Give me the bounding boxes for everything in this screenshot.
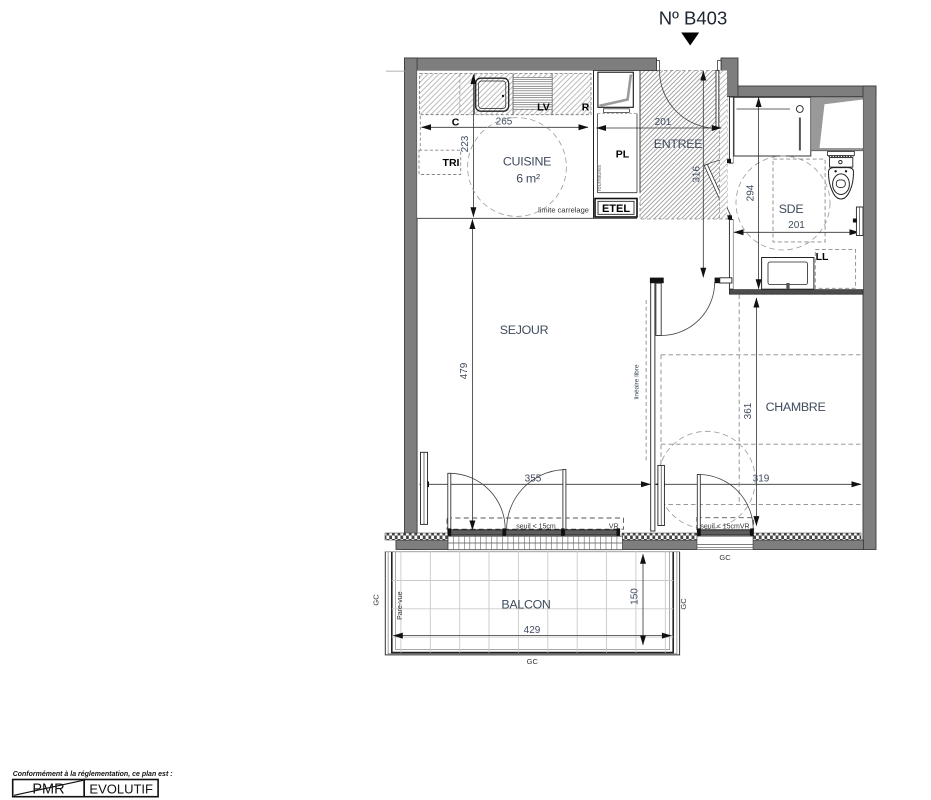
svg-text:CHAMBRE: CHAMBRE (766, 400, 826, 414)
svg-text:CUISINE: CUISINE (503, 155, 551, 169)
svg-text:SDE: SDE (779, 202, 804, 216)
svg-text:R: R (582, 101, 590, 113)
svg-text:SEJOUR: SEJOUR (500, 323, 549, 337)
svg-text:GC: GC (372, 594, 381, 606)
svg-text:223: 223 (460, 135, 471, 152)
svg-text:201: 201 (788, 220, 805, 231)
svg-text:6 m²: 6 m² (516, 171, 540, 185)
svg-text:LV: LV (537, 101, 550, 113)
svg-text:265: 265 (496, 117, 513, 128)
svg-text:linéaire libre: linéaire libre (634, 364, 641, 399)
svg-text:479: 479 (459, 362, 470, 379)
svg-text:limite carrelage: limite carrelage (538, 206, 589, 215)
svg-text:PL: PL (616, 148, 630, 160)
svg-text:GC: GC (679, 598, 688, 610)
svg-text:294: 294 (745, 184, 756, 201)
svg-text:201: 201 (655, 117, 672, 128)
svg-text:ENTREE: ENTREE (654, 137, 702, 151)
svg-text:PMR: PMR (32, 782, 64, 798)
svg-text:C: C (452, 117, 460, 129)
svg-text:ETEL: ETEL (602, 203, 630, 215)
svg-text:GC: GC (719, 553, 731, 562)
svg-text:EVOLUTIF: EVOLUTIF (89, 782, 153, 797)
svg-text:316: 316 (691, 166, 702, 183)
svg-text:Pare-vue: Pare-vue (397, 591, 404, 620)
svg-text:361: 361 (743, 402, 754, 419)
svg-text:fournitures: fournitures (597, 165, 603, 191)
svg-text:Nº B403: Nº B403 (659, 8, 727, 29)
svg-text:LL: LL (816, 251, 829, 263)
svg-text:GC: GC (527, 657, 539, 666)
svg-text:BALCON: BALCON (501, 597, 550, 611)
svg-text:TRI: TRI (443, 157, 460, 169)
svg-text:Conformément à la réglementati: Conformément à la réglementation, ce pla… (13, 771, 173, 778)
svg-text:429: 429 (524, 625, 541, 636)
svg-text:150: 150 (629, 588, 640, 605)
